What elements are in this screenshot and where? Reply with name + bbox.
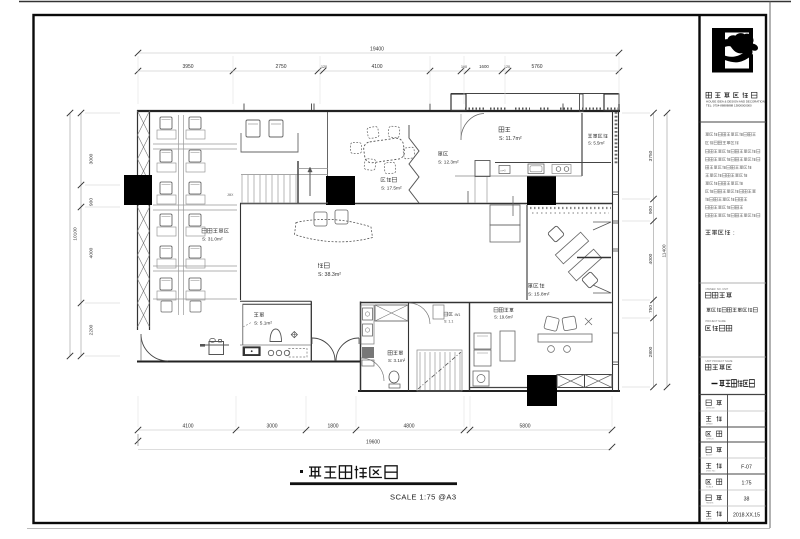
svg-text:SCALE: SCALE [706, 486, 714, 489]
svg-text:S: 38.3m²: S: 38.3m² [318, 272, 341, 278]
svg-text:3750: 3750 [648, 150, 654, 161]
svg-text:120: 120 [321, 65, 327, 69]
svg-text:4100: 4100 [371, 64, 382, 70]
svg-text:SCALE 1:75 @A3: SCALE 1:75 @A3 [390, 493, 457, 502]
svg-text:2200: 2200 [89, 324, 95, 335]
svg-text:2800: 2800 [648, 346, 654, 357]
svg-text:DWG NO.: DWG NO. [706, 471, 716, 473]
svg-text:38: 38 [744, 497, 750, 503]
svg-text:m=0: m=0 [501, 169, 507, 173]
svg-text:4000: 4000 [89, 247, 95, 258]
svg-text:JMX: JMX [227, 193, 234, 197]
svg-text:OWNER. NO. UNIT: OWNER. NO. UNIT [706, 287, 729, 291]
svg-text:2750: 2750 [275, 64, 286, 70]
svg-text:5760: 5760 [531, 64, 542, 70]
svg-text:19600: 19600 [366, 440, 380, 446]
svg-text:4800: 4800 [403, 424, 414, 430]
svg-text:4000: 4000 [648, 253, 654, 264]
svg-text:TEL: 0754-88888888 138000000: TEL: 0754-88888888 13800000000 [706, 104, 752, 108]
svg-text:3950: 3950 [182, 64, 193, 70]
svg-text:S: 17.5m²: S: 17.5m² [381, 185, 402, 191]
svg-text:S: 11.7m²: S: 11.7m² [499, 136, 522, 142]
svg-text::W1: :W1 [454, 313, 460, 317]
svg-text:3000: 3000 [89, 153, 95, 164]
svg-text:S: 5.5m²: S: 5.5m² [588, 141, 605, 146]
svg-text:10100: 10100 [73, 227, 79, 241]
svg-text:PROJECT NAME: PROJECT NAME [706, 319, 727, 323]
svg-text:DATE: DATE [706, 518, 712, 521]
svg-text:900: 900 [89, 198, 95, 206]
svg-text:1:75: 1:75 [741, 481, 751, 487]
svg-text:CHECK: CHECK [706, 439, 714, 441]
svg-text:2018.XX.15: 2018.XX.15 [733, 513, 760, 519]
svg-text:3000: 3000 [266, 424, 277, 430]
svg-text:PAGES: PAGES [706, 502, 714, 505]
svg-text:19400: 19400 [370, 47, 384, 53]
svg-text:S: 1.1: S: 1.1 [444, 320, 453, 324]
svg-text:DESIGN: DESIGN [706, 408, 715, 410]
svg-text:S: 15.8m²: S: 15.8m² [528, 292, 550, 298]
svg-text:S: 3.1m²: S: 3.1m² [388, 358, 406, 363]
svg-text:S: 5.1m²: S: 5.1m² [254, 320, 272, 326]
svg-text:S: 31.0m²: S: 31.0m² [202, 236, 223, 242]
svg-text::: : [733, 231, 735, 237]
svg-text:1600: 1600 [479, 64, 489, 69]
svg-text:900: 900 [648, 206, 654, 214]
svg-text:750: 750 [648, 305, 654, 313]
svg-text:S: 12.3m²: S: 12.3m² [438, 159, 459, 165]
svg-text:4100: 4100 [182, 424, 193, 430]
svg-text:DRAW: DRAW [706, 423, 714, 426]
svg-text:11400: 11400 [662, 244, 668, 257]
svg-text:1800: 1800 [327, 424, 338, 430]
svg-text:5800: 5800 [519, 424, 530, 430]
svg-text:AUDIT: AUDIT [706, 454, 713, 457]
svg-text:F-07: F-07 [741, 465, 752, 471]
svg-text:UNIT PROJECT NAME: UNIT PROJECT NAME [706, 359, 733, 363]
svg-text:S: 19.6m²: S: 19.6m² [494, 315, 513, 320]
